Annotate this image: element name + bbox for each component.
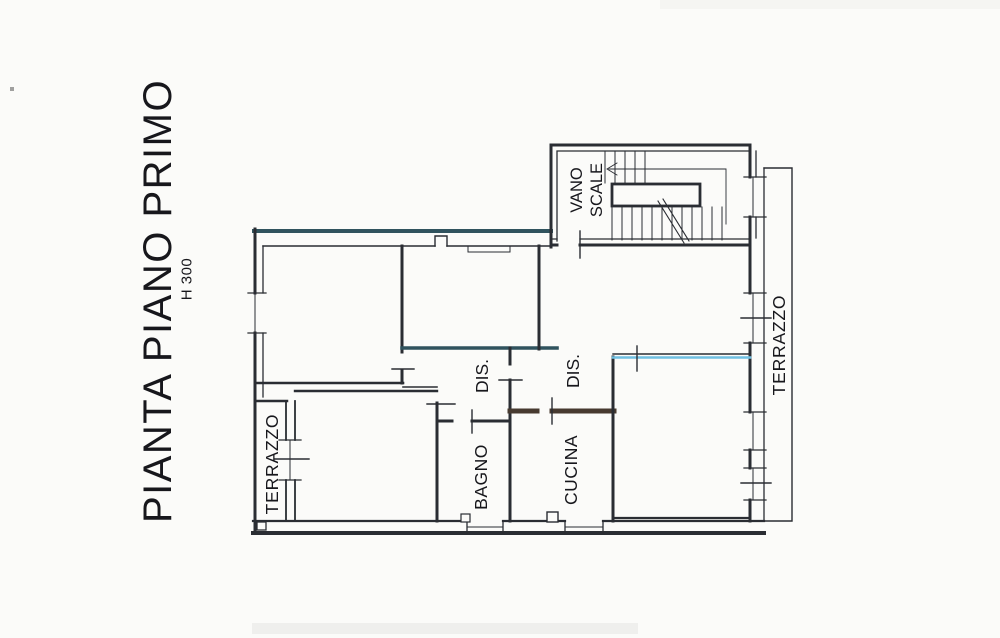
scanned-floor-plan-page: PIANTA PIANO PRIMO H 300 VANO SCALE TERR…	[0, 0, 1000, 638]
scan-smudge-bottom	[252, 623, 638, 634]
plan-title: PIANTA PIANO PRIMO	[136, 79, 180, 523]
room-label-dis-right: DIS.	[563, 354, 583, 388]
room-label-bagno: BAGNO	[471, 444, 491, 510]
door-notch-bagno	[461, 514, 470, 522]
window-left	[248, 293, 266, 333]
scan-speck	[10, 87, 14, 91]
stair-landing	[612, 184, 700, 206]
top-wall-recess	[435, 236, 447, 246]
stair-treads-lower	[612, 207, 722, 240]
interior-walls	[255, 246, 750, 521]
room-label-vano: VANO	[568, 167, 586, 213]
room-label-scale: SCALE	[588, 163, 606, 217]
floor-plan-drawing: PIANTA PIANO PRIMO H 300 VANO SCALE TERR…	[0, 0, 1000, 638]
door-notch-cucina	[547, 512, 558, 522]
wall-niche	[468, 246, 510, 252]
terrazzo-left-pillar	[257, 522, 266, 530]
room-label-terrazzo-left: TERRAZZO	[262, 414, 282, 515]
exterior-walls	[248, 145, 792, 533]
height-note: H 300	[179, 258, 196, 301]
scan-smudge-top	[660, 0, 1000, 9]
room-label-cucina: CUCINA	[561, 435, 581, 505]
room-label-terrazzo-right: TERRAZZO	[769, 295, 789, 396]
room-label-dis-left: DIS.	[472, 359, 492, 393]
stair-treads-upper	[605, 152, 645, 183]
